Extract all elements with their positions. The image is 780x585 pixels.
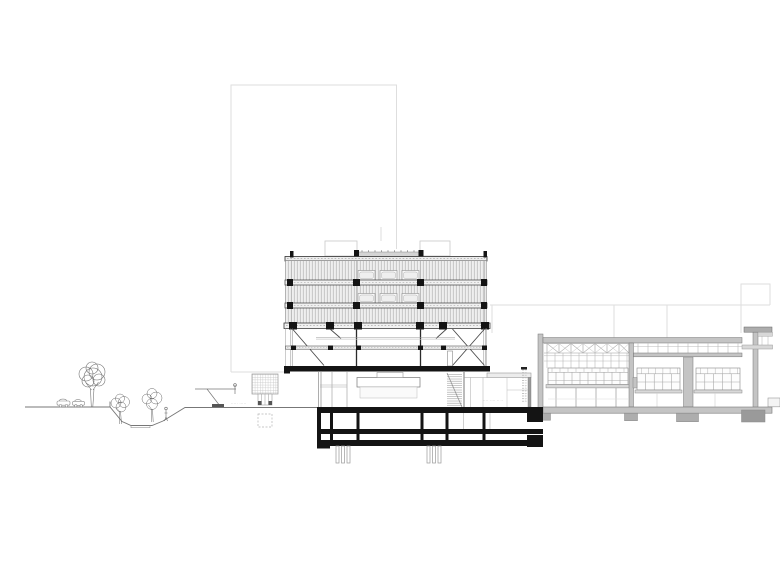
parked-car-2 <box>73 400 85 407</box>
hall-left-wall <box>538 334 543 412</box>
swale-tree-2 <box>142 389 162 423</box>
hall-ground-slab <box>284 366 490 372</box>
basement-step-right <box>527 407 543 422</box>
main-building <box>284 241 543 463</box>
hall-duct <box>448 351 453 366</box>
annotation-ground-right: ···· ···· – ·· <box>483 399 503 403</box>
rack-unit-left <box>546 368 630 407</box>
ghost-context-outlines <box>231 85 770 372</box>
basement-top-slab <box>317 407 527 413</box>
annotation-ground-left: ····· ····· <box>231 402 247 406</box>
interior-boxes-level2 <box>358 294 419 304</box>
architectural-section-drawing: ····· ····· ···· ···· – ·· ·· ··· ·· ··· <box>0 0 780 585</box>
large-tree <box>79 362 105 407</box>
hall-mezzanine-band <box>286 346 488 351</box>
ground-line <box>25 407 317 426</box>
basement-mid-slab <box>318 429 543 434</box>
hall-clerestory-left <box>544 353 630 368</box>
ground-floor <box>319 372 488 407</box>
hall-mid-column-1 <box>629 343 634 407</box>
stair-flight <box>447 373 462 407</box>
hall-floor-slab <box>543 407 772 413</box>
annotation-levels-vertical: ·· ··· ·· ··· <box>523 384 527 401</box>
hall-mezzanine-slab <box>634 353 743 357</box>
kiosk-pit-dashed <box>258 414 272 427</box>
hall-roof-truss <box>544 344 630 354</box>
right-hall-building <box>538 327 780 422</box>
foundation-piles <box>336 446 441 463</box>
hall-level <box>286 329 488 367</box>
rack-legs <box>556 388 616 407</box>
ground-floor-left-wall <box>319 372 322 407</box>
facade-louver-bands <box>286 257 487 328</box>
hall-clerestory-right <box>634 344 742 354</box>
link-wall <box>528 378 531 408</box>
basement-bottom-slab <box>318 440 543 446</box>
hall-mid-column-2 <box>684 357 694 407</box>
basement-footing-right <box>527 435 543 447</box>
hall-far-right-bay <box>742 327 780 407</box>
utility-kiosk <box>252 374 278 427</box>
rack-unit-right <box>694 368 742 393</box>
lobby-podium <box>357 373 420 399</box>
section-canvas: ····· ····· ···· ···· – ·· ·· ··· ·· ··· <box>0 0 780 585</box>
interior-boxes-level3 <box>358 271 419 281</box>
ghost-volume-large <box>231 85 397 372</box>
ghost-context-upper-right <box>741 284 770 333</box>
basement <box>317 407 543 449</box>
hall-roof-slab <box>543 338 742 344</box>
parked-car-1 <box>57 399 70 407</box>
rack-unit-middle <box>633 368 682 393</box>
